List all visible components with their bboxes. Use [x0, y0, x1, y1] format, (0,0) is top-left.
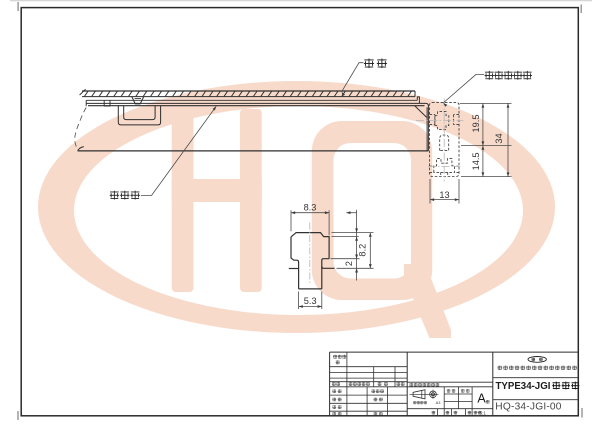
svg-text:19.5: 19.5: [471, 115, 481, 133]
svg-text:HQ-34-JGI-00: HQ-34-JGI-00: [495, 402, 562, 413]
svg-text:14.5: 14.5: [471, 152, 481, 170]
svg-text:8.3: 8.3: [304, 202, 317, 212]
svg-text:13: 13: [439, 190, 449, 200]
svg-text:TYPE34-JGI: TYPE34-JGI: [496, 381, 551, 392]
svg-text:A: A: [477, 392, 486, 406]
svg-text:2: 2: [344, 261, 354, 266]
svg-text:5.3: 5.3: [304, 296, 317, 306]
svg-text:34: 34: [494, 133, 504, 143]
svg-text:8.2: 8.2: [358, 244, 368, 257]
svg-text:5:1: 5:1: [480, 410, 487, 415]
svg-text:A3: A3: [436, 400, 441, 405]
